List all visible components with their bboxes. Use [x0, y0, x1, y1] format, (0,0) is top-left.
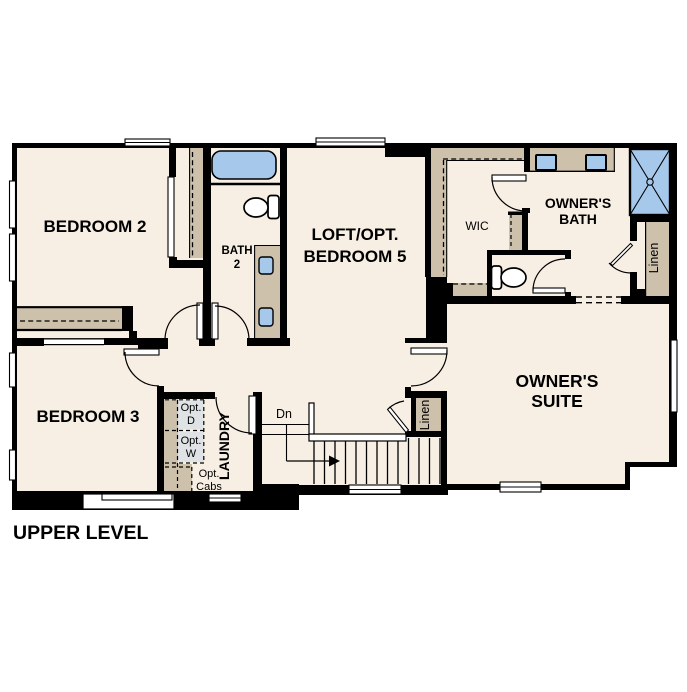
svg-text:Opt.: Opt. [181, 435, 202, 447]
svg-text:UPPER LEVEL: UPPER LEVEL [13, 522, 149, 544]
svg-text:D: D [187, 415, 195, 427]
svg-text:Opt.: Opt. [181, 402, 202, 414]
svg-text:OWNER'S: OWNER'S [545, 195, 611, 211]
svg-text:LOFT/OPT.: LOFT/OPT. [312, 225, 399, 244]
svg-text:Dn: Dn [276, 407, 292, 421]
svg-text:2: 2 [234, 259, 240, 271]
svg-text:BEDROOM 2: BEDROOM 2 [44, 217, 147, 236]
svg-text:OWNER'S: OWNER'S [516, 371, 599, 391]
svg-text:WIC: WIC [465, 219, 489, 233]
svg-text:BEDROOM 3: BEDROOM 3 [37, 407, 140, 426]
svg-text:Opt.: Opt. [199, 468, 220, 480]
svg-text:BATH: BATH [221, 245, 252, 257]
svg-text:BATH: BATH [559, 211, 597, 227]
svg-text:SUITE: SUITE [531, 391, 583, 411]
svg-text:Linen: Linen [418, 400, 432, 431]
svg-text:Cabs: Cabs [196, 481, 222, 493]
svg-text:W: W [186, 448, 197, 460]
svg-text:BEDROOM 5: BEDROOM 5 [304, 247, 407, 266]
svg-text:Linen: Linen [647, 243, 661, 274]
